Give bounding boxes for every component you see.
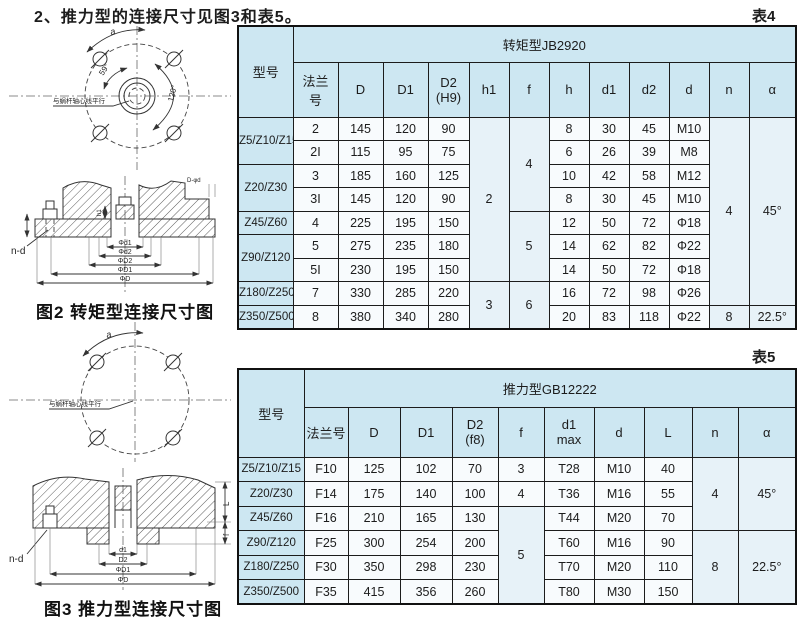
table-cell: 150 [428,258,469,282]
row-header: Z90/Z120 [238,235,293,282]
table-cell: 200 [452,531,498,556]
table-cell: 340 [383,305,428,329]
table-cell: 175 [348,482,400,507]
table-cell: 95 [383,141,428,165]
table-cell: 260 [452,580,498,605]
table-cell: 230 [452,555,498,580]
table-cell: 165 [400,506,452,531]
row-header: Z20/Z30 [238,482,304,507]
col-header-model: 型号 [238,26,293,117]
table-cell: 130 [452,506,498,531]
table-cell: 180 [428,235,469,259]
table-cell: 90 [644,531,692,556]
table-cell: 20 [549,305,589,329]
table-cell: 50 [589,211,629,235]
table-cell: F10 [304,457,348,482]
table-cell: 14 [549,258,589,282]
table-cell: M8 [669,141,709,165]
table-cell: M10 [669,188,709,212]
table-cell: 5 [498,506,544,604]
phi-D2-label: ΦD2 [118,258,133,265]
center-key [119,197,131,205]
table-cell: 254 [400,531,452,556]
table-cell: 14 [549,235,589,259]
table-row: 型号推力型GB12222 [238,369,796,407]
nd-label: n-d [9,554,23,565]
table-cell: Φ22 [669,305,709,329]
table-cell: 120 [383,117,428,141]
hub-left-section [87,528,109,544]
table-row: 法兰 号DD1D2 (H9)h1fhd1d2dnα [238,62,796,117]
inner-sleeve [115,486,131,510]
table-cell: 22.5° [749,305,796,329]
col-header: α [749,62,796,117]
thrust-type-table: 型号推力型GB12222法兰号DD1D2 (f8)fd1 maxdLnαZ5/Z… [237,368,797,605]
table-cell: 72 [589,282,629,306]
top-right-dim-label: D-φd [187,178,201,184]
col-header: D2 (f8) [452,407,498,457]
table-cell: F14 [304,482,348,507]
table-cell: 415 [348,580,400,605]
table-cell: 45 [629,117,669,141]
a-dimension-arc [83,333,143,356]
table-cell: Φ18 [669,258,709,282]
col-header: d [594,407,644,457]
col-header: f [498,407,544,457]
table-cell: 72 [629,258,669,282]
table-cell: 140 [400,482,452,507]
table-cell: 16 [549,282,589,306]
table-cell: Φ18 [669,211,709,235]
table-cell: 75 [428,141,469,165]
col-header: h1 [469,62,509,117]
d1-label: d1 [119,547,127,554]
table-cell: 125 [348,457,400,482]
table-cell: 30 [589,188,629,212]
table-cell: 40 [644,457,692,482]
body-right-section [139,181,209,219]
table-cell: 2I [293,141,338,165]
row-header: Z350/Z500 [238,580,304,605]
table-cell: 39 [629,141,669,165]
table-cell: 220 [428,282,469,306]
table-cell: 4 [709,117,749,305]
table-cell: M16 [594,482,644,507]
table-cell: 82 [629,235,669,259]
table-cell: 6 [509,282,549,329]
table-cell: T44 [544,506,594,531]
col-header: 法兰号 [304,407,348,457]
table-cell: F30 [304,555,348,580]
table-cell: 300 [348,531,400,556]
table-cell: F16 [304,506,348,531]
table-cell: 195 [383,211,428,235]
table-cell: T36 [544,482,594,507]
table-cell: 3 [498,457,544,482]
table-cell: 3 [293,164,338,188]
table-cell: 195 [383,258,428,282]
col-header: n [692,407,738,457]
table-cell: 145 [338,117,383,141]
body-left-section [63,182,111,219]
table-cell: 356 [400,580,452,605]
table-cell: 62 [589,235,629,259]
table-row: 法兰号DD1D2 (f8)fd1 maxdLnα [238,407,796,457]
table-cell: 4 [293,211,338,235]
table-cell: 22.5° [738,531,796,605]
phi-D-label: ΦD [118,577,129,584]
torque-type-table: 型号转矩型JB2920法兰 号DD1D2 (H9)h1fhd1d2dnαZ5/Z… [237,25,797,330]
table-cell: 210 [348,506,400,531]
angle-120-label: 120° [166,84,179,102]
table5-group-header: 推力型GB12222 [304,369,796,407]
table-cell: M12 [669,164,709,188]
table-cell: 8 [293,305,338,329]
table-cell: 185 [338,164,383,188]
table-cell: 8 [692,531,738,605]
table-cell: 8 [709,305,749,329]
col-header: d [669,62,709,117]
table-row: Z5/Z10/Z15F10125102703T28M1040445° [238,457,796,482]
table-cell: 70 [644,506,692,531]
table-cell: Φ22 [669,235,709,259]
table-cell: T70 [544,555,594,580]
col-header: d1 max [544,407,594,457]
bolt-body [43,514,57,528]
body-right-section [137,476,215,529]
col-header: n [709,62,749,117]
col-header: D1 [383,62,428,117]
table-cell: M20 [594,506,644,531]
col-header-model: 型号 [238,369,304,457]
table-cell: 150 [644,580,692,605]
col-header: D2 (H9) [428,62,469,117]
phi-d2-label: Φd2 [118,249,131,256]
a-dimension-label: a [105,329,112,340]
table-cell: 5 [509,211,549,282]
table-cell: 230 [338,258,383,282]
col-header: h [549,62,589,117]
fig2-section-view: n-d D-φd h1 Φd1 Φd2 ΦD2 ΦD1 ΦD [3,174,235,298]
table-cell: 5 [293,235,338,259]
table-cell: 30 [589,117,629,141]
table-cell: 58 [629,164,669,188]
table-cell: 235 [383,235,428,259]
table-cell: 350 [348,555,400,580]
worm-axis-note: 与蜗杆轴心线平行 [49,399,102,408]
table-cell: 4 [692,457,738,531]
row-header: Z180/Z250 [238,282,293,306]
flange-plate-right [139,219,215,237]
table-cell: 90 [428,188,469,212]
fig3-flange-front-view: a 与蜗杆轴心线平行 [3,316,235,466]
bolt-head [46,506,54,514]
table-cell: F25 [304,531,348,556]
table-cell: 45 [629,188,669,212]
table-cell: 90 [428,117,469,141]
D2-label: D2 [119,557,128,564]
row-header: Z350/Z500 [238,305,293,329]
table-cell: 98 [629,282,669,306]
table-cell: 102 [400,457,452,482]
table-cell: M20 [594,555,644,580]
h1-label: h1 [97,209,103,216]
table-cell: 72 [629,211,669,235]
col-header: D1 [400,407,452,457]
table-cell: 145 [338,188,383,212]
row-header: Z45/Z60 [238,506,304,531]
col-header: f [509,62,549,117]
worm-axis-note: 与蜗杆轴心线平行 [53,96,106,105]
table-cell: 150 [428,211,469,235]
table-cell: 8 [549,117,589,141]
phi-D-label: ΦD [120,276,131,283]
nd-label: n-d [11,246,25,257]
table-cell: 7 [293,282,338,306]
table-cell: 10 [549,164,589,188]
col-header: L [644,407,692,457]
row-header: Z5/Z10/Z15 [238,457,304,482]
row-header: Z45/Z60 [238,211,293,235]
phi-d1-label: Φd1 [118,240,131,247]
nd-leader-line [27,530,47,554]
col-header: D [338,62,383,117]
table-cell: 4 [498,482,544,507]
row-header: Z90/Z120 [238,531,304,556]
L-label: L [222,501,231,506]
a-dimension-label: a [109,26,116,37]
table-cell: M30 [594,580,644,605]
a-dimension-arc [87,30,145,52]
table-cell: 45° [738,457,796,531]
phi-D1-label: ΦD1 [116,567,131,574]
table5-tag: 表5 [752,346,775,367]
table-cell: 115 [338,141,383,165]
table-cell: 330 [338,282,383,306]
table-cell: 3I [293,188,338,212]
col-header: d1 [589,62,629,117]
fig3-caption: 图3 推力型连接尺寸图 [44,595,222,620]
table-cell: 55 [644,482,692,507]
table-cell: 285 [383,282,428,306]
table-cell: M10 [594,457,644,482]
table-cell: 118 [629,305,669,329]
phi-D1-label: ΦD1 [118,267,133,274]
col-header: D [348,407,400,457]
col-header: d2 [629,62,669,117]
table4-group-header: 转矩型JB2920 [293,26,796,62]
table4-tag: 表4 [752,5,775,26]
table-cell: 12 [549,211,589,235]
row-header: Z20/Z30 [238,164,293,211]
hub-right-section [137,528,159,544]
table-cell: 275 [338,235,383,259]
table-cell: 298 [400,555,452,580]
table-cell: 5I [293,258,338,282]
fig3-section-view: n-d L f d1 D2 ΦD1 ΦD [3,466,235,594]
table-cell: 2 [293,117,338,141]
bolt-head [46,201,54,209]
table-cell: T80 [544,580,594,605]
table-cell: 100 [452,482,498,507]
table-cell: 380 [338,305,383,329]
table-cell: 2 [469,117,509,282]
table-cell: 50 [589,258,629,282]
table-cell: 125 [428,164,469,188]
f-label: f [222,533,231,536]
row-header: Z5/Z10/Z15 [238,117,293,164]
table-cell: 160 [383,164,428,188]
table-row: Z5/Z10/Z152145120902483045M10445° [238,117,796,141]
col-header: α [738,407,796,457]
table-cell: 110 [644,555,692,580]
table-cell: 4 [509,117,549,211]
table-cell: 42 [589,164,629,188]
table-cell: 225 [338,211,383,235]
center-insert [116,205,134,219]
table-cell: M10 [669,117,709,141]
table-cell: 3 [469,282,509,329]
fig2-flange-front-view: a 59° 120° 与蜗杆轴心线平行 [3,22,235,174]
table-cell: M16 [594,531,644,556]
table-cell: T28 [544,457,594,482]
table-row: 型号转矩型JB2920 [238,26,796,62]
table-cell: 70 [452,457,498,482]
bolt-body [43,209,57,219]
table-cell: 120 [383,188,428,212]
table-cell: 83 [589,305,629,329]
table-cell: 6 [549,141,589,165]
table-cell: F35 [304,580,348,605]
table-cell: 26 [589,141,629,165]
table-cell: Φ26 [669,282,709,306]
table-cell: 280 [428,305,469,329]
table-cell: 8 [549,188,589,212]
table-cell: 45° [749,117,796,305]
table-cell: T60 [544,531,594,556]
row-header: Z180/Z250 [238,555,304,580]
col-header: 法兰 号 [293,62,338,117]
